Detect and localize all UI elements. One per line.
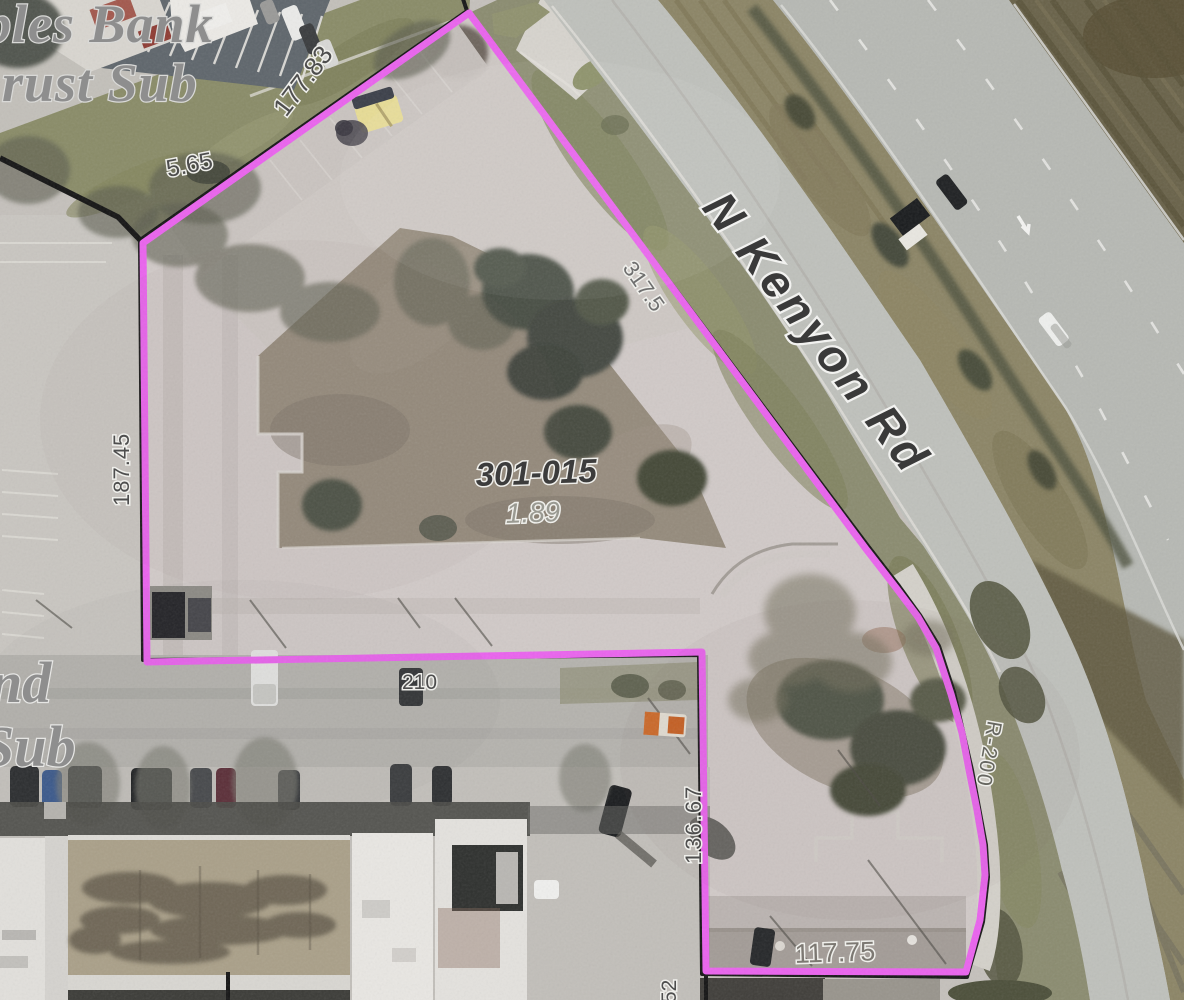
svg-text:ples Bank: ples Bank — [0, 0, 214, 54]
svg-text:1.89: 1.89 — [505, 496, 561, 529]
svg-text:52: 52 — [658, 980, 681, 1000]
svg-text:187.45: 187.45 — [109, 433, 134, 506]
svg-text:nd: nd — [0, 650, 52, 715]
svg-text:301-015: 301-015 — [475, 452, 598, 493]
svg-text:rust Sub: rust Sub — [2, 53, 198, 113]
svg-text:136.67: 136.67 — [681, 785, 706, 864]
svg-text:Sub: Sub — [0, 714, 76, 779]
svg-text:210: 210 — [402, 671, 437, 694]
svg-text:117.75: 117.75 — [794, 936, 876, 969]
